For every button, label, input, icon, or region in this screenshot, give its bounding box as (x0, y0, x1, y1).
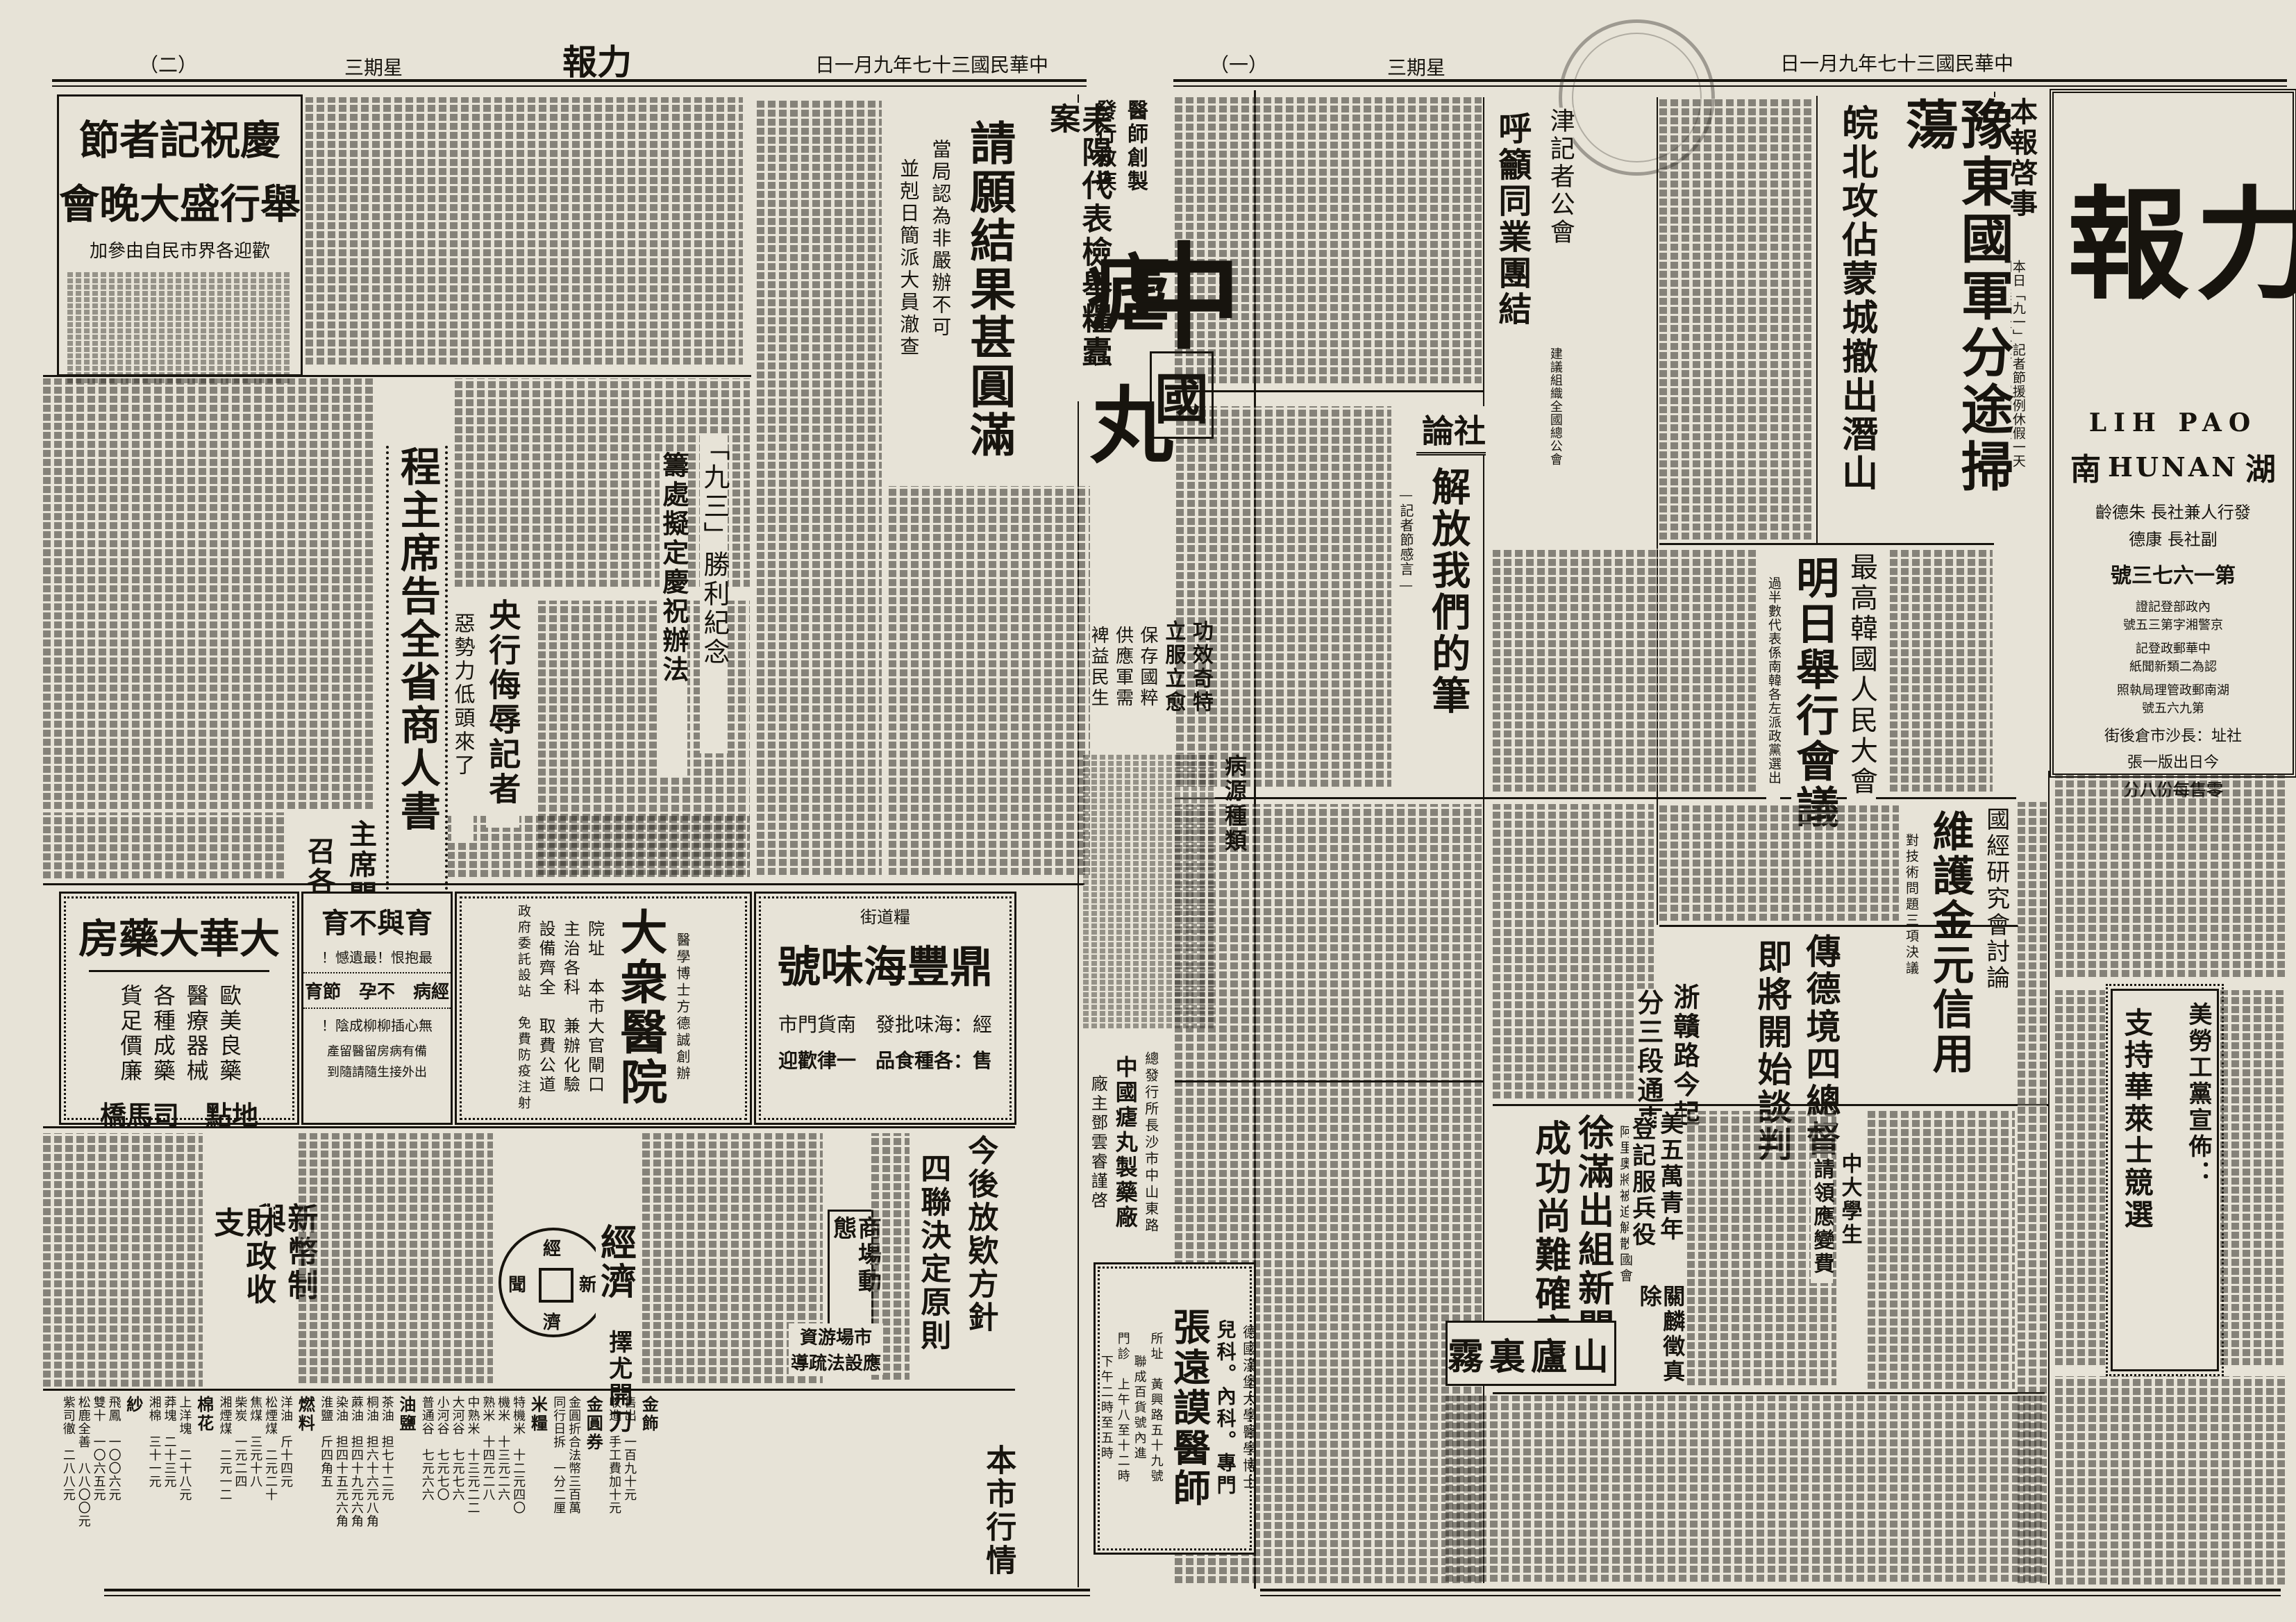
market-item: 松煙煤 二元二十 (263, 1396, 276, 1585)
masthead-latin: LIH PAO (2054, 408, 2293, 437)
market-category: 金飾 (640, 1396, 657, 1585)
p1-header-rule (1173, 79, 2287, 87)
coin-char-top: 經 (543, 1235, 561, 1260)
zhang-address-2: 聯成百貨號內進 (1132, 1273, 1146, 1544)
funds-headline: 市場游資 應設法疏導 (789, 1323, 883, 1375)
p2-page-number: （二） (139, 50, 197, 78)
fertility-line: 備有病房留醫留產 (303, 1042, 451, 1060)
dazhong-hospital-ad: 醫學博士方德誠創辦 大衆醫院 院址 本市大官閘口 主治各科 兼辦化驗 設備齊全 … (455, 892, 752, 1125)
market-item: 湘棉 三十一元 (147, 1396, 160, 1585)
masthead-address: 社址：長沙市倉後街 (2054, 724, 2293, 746)
p2-mid-left-text (43, 378, 376, 809)
students-headline-2: 請領應變費 (1811, 1158, 1833, 1283)
market-item: 飛鳳 一〇〇六元 (107, 1396, 120, 1585)
masthead-registration2: 京警湘字第三五號 (2054, 615, 2293, 633)
p1-page-number: （一） (1209, 50, 1268, 78)
zhang-hours-1: 門診 上午八至十二時 (1116, 1273, 1129, 1544)
masthead-publisher2: 副社長 康德 (2054, 526, 2293, 550)
korea-kicker: 最高韓國人民大會 (1847, 553, 1876, 844)
market-item: 蔴油 担四十九元六角 (349, 1396, 362, 1585)
dazhong-line: 設備齊全 取費公道 (537, 903, 554, 1112)
celebration-line2: 舉行盛大晚會 (59, 172, 301, 230)
masthead-issue: 第一六七三號 (2054, 558, 2293, 589)
malaria-slogan: 裨益民生 (1089, 587, 1107, 747)
p2-bottom-rule (104, 1589, 1090, 1596)
lushan-box: 霧裏廬山 (1446, 1321, 1616, 1386)
masthead-postal1: 中華郵政登記 (2054, 639, 2293, 657)
malaria-section-title: 病源種類 (1222, 754, 1246, 865)
dingfeng-line: 售：各種食品 一律歡迎 (756, 1046, 1014, 1073)
sep3-headline-2: 籌處擬定慶祝辦法 (660, 451, 687, 778)
coin-hole (539, 1268, 573, 1303)
p2-date: 中華民國三十七年九月一日 (812, 50, 1048, 78)
masthead-region-latin: HUNAN (2108, 451, 2238, 483)
dazhong-founder: 醫學博士方德誠創辦 (675, 903, 689, 1112)
p2-weekday: 星期三 (326, 53, 403, 81)
biz-box: 商場動態 (828, 1210, 873, 1328)
gold-headline: 維護金元信用 (1927, 810, 1971, 1129)
dazhong-address: 院址 本市大官閘口 (585, 903, 603, 1112)
zhang-address-1: 所址 黃興路五十九號 (1149, 1273, 1162, 1544)
fertility-line: 無心插柳柳成陰！ (303, 1014, 451, 1035)
dahua-pharmacy-ad: 大華大藥房 歐美良藥 醫療器械 各種成藥 貨足價廉 地點 司馬橋 (59, 892, 299, 1125)
market-item: 普通谷 七元六六 (420, 1396, 433, 1585)
malaria-body-text (1083, 754, 1215, 1028)
masthead-publisher1: 發行人兼社長 朱德齡 (2054, 499, 2293, 523)
economy-coin-logo: 經 濟 新 聞 (498, 1228, 608, 1337)
leiyang-left-text (757, 101, 882, 875)
zhang-doctor-ad: 德國漢堡大學醫學博士 兒科。內科。專門 張遠謨醫師 所址 黃興路五十九號 聯成百… (1093, 1262, 1256, 1555)
lead-subheadline: 皖北攻佔蒙城撤出潛山 (1837, 104, 1875, 542)
economy-section-label: 經濟 (596, 1223, 634, 1321)
masthead-edition: 今日出版一張 (2054, 750, 2293, 772)
p1-bottom-wide-text (1446, 1396, 2044, 1582)
p2-top-mid-text (305, 97, 743, 365)
p1-mid-left-text (1493, 804, 1654, 1098)
fertility-clinic-ad: 育與不育 最抱恨！最遺憾！ 經病 不孕 節育 無心插柳柳成陰！ 備有病房留醫留產… (301, 892, 453, 1125)
dazhong-name: 大衆醫院 (614, 903, 664, 1112)
dingfeng-street: 糧道街 (756, 903, 1014, 928)
fertility-line: 最抱恨！最遺憾！ (303, 946, 451, 967)
bank-subheadline: 惡勢力低頭來了 (451, 612, 474, 842)
editorial-byline: —記者節感言— (1398, 486, 1413, 778)
malaria-maker-line: 發行救疾 (1093, 94, 1115, 199)
p2-rule-4 (43, 1389, 1015, 1391)
labor-headline-1: 美勞工黨宣佈： (2185, 1002, 2210, 1349)
masthead-region-right: 湖 (2245, 444, 2276, 489)
market-item: 焦煤 三元十八 (248, 1396, 261, 1585)
dahua-rule (89, 970, 269, 972)
market-item: 紫司徹 二八八元 (61, 1396, 74, 1585)
market-item: 松鹿全善 八八〇〇元 (76, 1396, 90, 1585)
leiyang-lower-text (889, 486, 1090, 875)
p2-econ-text-2 (299, 1133, 493, 1383)
malaria-maker-line: 醫師創製 (1125, 94, 1147, 199)
masthead: 力報 LIH PAO 南 HUNAN 湖 發行人兼社長 朱德齡 副社長 康德 第… (2050, 89, 2296, 778)
editorial-label: 社論 (1416, 406, 1486, 455)
market-item: 售出 一百九十元 (622, 1396, 635, 1585)
p1-right-col-text-4 (2055, 1376, 2286, 1585)
celebration-line3: 歡迎各界市民自由參加 (59, 237, 301, 262)
masthead-region: 南 HUNAN 湖 (2054, 444, 2293, 489)
gold-body-text (1659, 804, 1899, 921)
celebration-box: 慶祝記者節 舉行盛大晚會 歡迎各界市民自由參加 (57, 94, 303, 376)
p1-rule-lead (1659, 543, 1994, 545)
zhang-name: 張遠謨醫師 (1169, 1273, 1209, 1544)
p2-rule-3 (43, 1126, 1015, 1128)
malaria-slogan: 供應軍需 (1113, 587, 1132, 747)
p1-col-rule-5 (2048, 771, 2050, 1585)
korea-left-text (1493, 549, 1757, 792)
p2-rule-2 (43, 883, 1084, 885)
market-item: 小河谷 七元七〇 (435, 1396, 449, 1585)
market-title: 本市行情 (982, 1444, 1014, 1590)
lushan-title: 霧裏廬山 (1448, 1328, 1614, 1380)
us-youth-headline-1: 美五萬青年 (1657, 1111, 1682, 1250)
masthead-license1: 湖南郵政管理局執照 (2054, 680, 2293, 699)
newspaper-sheet: 中華民國三十七年九月一日 力報 星期三 （二） 中華民國三十七年九月一日 星期三… (0, 0, 2296, 1622)
market-table: 金飾 售出 一百九十元 收進 手工費加十元 金圓券 金圓折合法幣三百萬 同行日拆… (59, 1396, 975, 1585)
market-item: 收進 手工費加十元 (607, 1396, 620, 1585)
market-item: 中熟米 十三元二二 (466, 1396, 479, 1585)
fertility-line: 出外接生隨請隨到 (303, 1062, 451, 1080)
fertility-line: 經病 不孕 節育 (303, 972, 451, 1009)
market-item: 金圓折合法幣三百萬 (567, 1396, 580, 1585)
celebration-body-text (67, 272, 292, 383)
market-item: 上洋塊 二十八元 (178, 1396, 191, 1585)
p1-right-col-text-2 (2055, 990, 2105, 1365)
guan-headline: 關麟徵真除 (1637, 1285, 1684, 1403)
tianjin-kicker: 津記者公會 (1547, 108, 1573, 337)
tianjin-subheadline: 建議組織全國總公會 (1548, 347, 1561, 500)
funds-headline-2: 應設法疏導 (789, 1349, 883, 1375)
labor-headline-2: 支持華萊士競選 (2121, 1008, 2152, 1358)
p1-right-col-text-1 (2055, 774, 2286, 977)
leiyang-subheadline-2: 並剋日簡派大員澈查 (898, 158, 919, 485)
malaria-factory: 中國瘧丸製藥廠 (1113, 1039, 1137, 1247)
dahua-item: 醫療器械 (184, 982, 208, 1086)
loans-headline-1: 今後放欵方針 (964, 1135, 996, 1378)
zhang-degree: 德國漢堡大學醫學博士 (1241, 1273, 1256, 1544)
market-item: 大河谷 七元七六 (451, 1396, 464, 1585)
market-item: 特機米 十二元四〇 (511, 1396, 524, 1585)
market-item: 淮鹽 斤四角五 (319, 1396, 332, 1585)
dazhong-line: 主治各科 兼辦化驗 (561, 903, 578, 1112)
market-item: 莽塊 二十三元 (162, 1396, 176, 1585)
leiyang-subheadline-1: 當局認為非嚴辦不可 (930, 139, 950, 451)
market-item: 雙十 一〇六五元 (92, 1396, 105, 1585)
market-item: 桐油 担六十六元八角 (364, 1396, 378, 1585)
malaria-title: 中 國 瘧 丸 (1083, 199, 1248, 587)
loans-headline-2: 四聯決定原則 (916, 1153, 948, 1396)
market-item: 染油 担四十五元六角 (334, 1396, 347, 1585)
funds-headline-1: 市場游資 (789, 1323, 883, 1349)
schuman-headline-1: 徐滿出組新閣 (1573, 1114, 1611, 1350)
market-category: 棉花 (195, 1396, 212, 1585)
malaria-char-wan: 丸 (1090, 358, 1173, 479)
celebration-line1: 慶祝記者節 (59, 108, 301, 166)
schuman-headline-2: 成功尚難確定 (1530, 1119, 1568, 1355)
p2-econ-text-1 (43, 1133, 203, 1387)
fertility-title: 育與不育 (303, 901, 451, 941)
dahua-item: 貨足價廉 (118, 982, 142, 1086)
market-category: 金圓券 (585, 1396, 602, 1585)
p2-header-rule (52, 79, 1087, 87)
p1-col-rule-3 (1816, 96, 1818, 544)
market-category: 燃料 (296, 1396, 314, 1585)
labor-box: 美勞工黨宣佈： 支持華萊士競選 (2111, 989, 2219, 1371)
p1-rule-6 (1493, 1392, 2045, 1394)
malaria-pill-ad: 醫師創製 發行救疾 中 國 瘧 丸 功效奇特 立服立愈 保存國粹 供應軍需 裨益… (1083, 94, 1248, 1255)
market-item: 湘煙煤 二元一二 (218, 1396, 231, 1585)
p1-date: 中華民國三十七年九月一日 (1777, 49, 2013, 76)
tianjin-headline: 呼籲同業團結 (1494, 111, 1529, 458)
us-youth-headline-2: 登記服兵役 (1629, 1117, 1654, 1255)
market-category: 米糧 (529, 1396, 546, 1585)
bank-headline: 央行侮辱記者 (486, 599, 519, 828)
malaria-slogan: 功效奇特 (1189, 587, 1212, 747)
p1-rule-5 (1493, 1104, 2050, 1106)
students-headline-1: 中大學生 (1838, 1153, 1861, 1257)
malaria-slogan: 保存國粹 (1138, 587, 1157, 747)
dingfeng-line: 經：海味批發 南貨門市 (756, 1010, 1014, 1037)
masthead-postal2: 認為二類新聞紙 (2054, 657, 2293, 675)
p1-weekday: 星期三 (1369, 53, 1446, 81)
market-category: 油鹽 (398, 1396, 415, 1585)
dingfeng-name: 鼎豐海味號 (756, 932, 1014, 994)
masthead-license2: 第九六五號 (2054, 699, 2293, 717)
malaria-slogan: 立服立愈 (1162, 587, 1184, 747)
sep3-headline-1: 「九三」勝利紀念 (700, 434, 728, 753)
p2-rule-1 (43, 375, 751, 377)
market-item: 機米 十三元二六 (496, 1396, 509, 1585)
masthead-region-left: 南 (2070, 444, 2101, 489)
lead-headline: 豫東國軍分途掃蕩 (1900, 97, 2011, 547)
p1-lower-mid-text (1868, 1111, 2015, 1389)
market-item: 同行日拆 一分二厘 (551, 1396, 564, 1585)
gold-subheadline: 對技術問題三項決議 (1904, 833, 1918, 1097)
p1-rule-3 (1175, 797, 2016, 799)
malaria-char-nue: 瘧 (1087, 226, 1171, 347)
malaria-owner: 廠主鄧雲睿謹啓 (1089, 1039, 1106, 1247)
dahua-item: 歐美良藥 (217, 982, 241, 1086)
market-item: 熟米 十四元二八 (480, 1396, 494, 1585)
dahua-name: 大華大藥房 (61, 906, 297, 964)
zhang-dept: 兒科。內科。專門 (1215, 1273, 1235, 1544)
governor-letter-headline: 程主席告全省商人書 (386, 446, 448, 890)
dahua-item: 各種成藥 (151, 982, 174, 1086)
currency-headline-2: 財政收支 (210, 1207, 274, 1335)
leiyang-headline: 請願結果甚圓滿 (965, 119, 1013, 480)
p2-paper-title: 力報 (528, 35, 632, 85)
dingfeng-grocery-ad: 糧道街 鼎豐海味號 經：海味批發 南貨門市 售：各種食品 一律歡迎 (754, 892, 1016, 1125)
p1-col-rule-2 (1657, 97, 1658, 925)
korea-right-text (1890, 549, 1993, 792)
p1-bottom-rule (1260, 1589, 2281, 1596)
lead-body-text (1659, 99, 1813, 540)
zhang-hours-2: 下午二時至五時 (1099, 1273, 1112, 1544)
market-item: 柴炭 一元二四 (233, 1396, 246, 1585)
market-item: 茶油 担七十二元 (380, 1396, 393, 1585)
p2-mid-text-4 (43, 812, 286, 878)
market-item: 洋油 斤十四元 (278, 1396, 292, 1585)
coin-char-left: 聞 (508, 1271, 526, 1296)
coin-char-bottom: 濟 (543, 1308, 561, 1334)
dazhong-line: 政府委託設站 免費防疫注射 (516, 903, 530, 1112)
malaria-distributor: 總發行所長沙市中山東路 (1143, 1039, 1158, 1247)
masthead-registration1: 內政部登記證 (2054, 597, 2293, 615)
masthead-title: 力報 (2054, 112, 2296, 390)
editorial-title: 解放我們的筆 (1427, 467, 1468, 793)
gold-kicker: 國經研究會討論 (1983, 807, 2008, 1015)
market-category: 紗 (125, 1396, 142, 1585)
p1-rule-4 (1659, 925, 2018, 927)
p1-right-col-text-3 (2220, 990, 2287, 1365)
